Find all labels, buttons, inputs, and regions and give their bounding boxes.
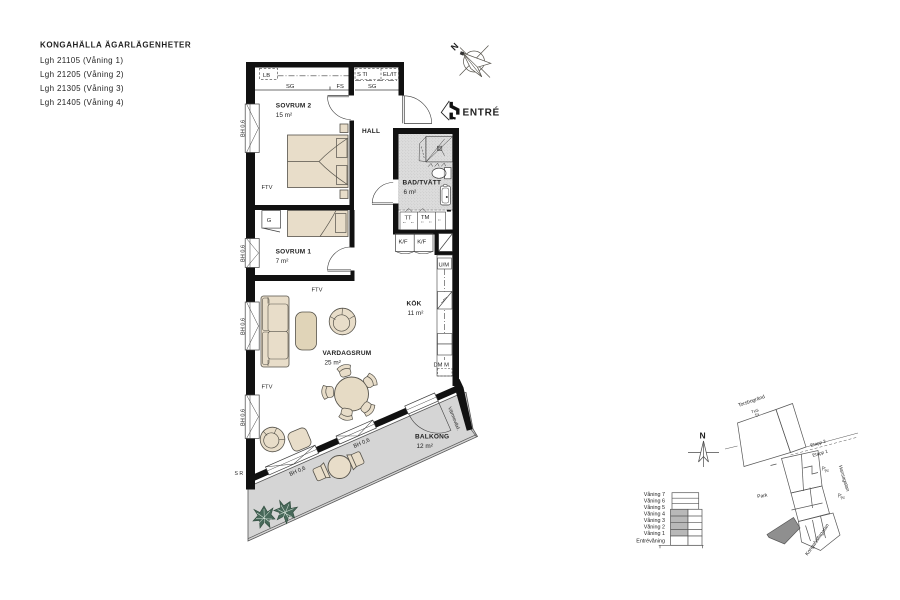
svg-text:Våning 6: Våning 6: [644, 498, 665, 505]
svg-text:BH 0,6: BH 0,6: [241, 318, 247, 335]
svg-text:VARDAGSRUM: VARDAGSRUM: [323, 350, 372, 357]
svg-text:TxG: TxG: [750, 407, 759, 414]
svg-text:DM M: DM M: [434, 363, 450, 369]
svg-text:Kongahällagatan: Kongahällagatan: [804, 523, 831, 557]
svg-text:SOVRUM 2: SOVRUM 2: [276, 103, 312, 110]
svg-text:BH 0,6: BH 0,6: [241, 245, 247, 262]
svg-text:15 m²: 15 m²: [276, 112, 292, 119]
svg-text:BH 0,6: BH 0,6: [241, 409, 247, 426]
svg-text:Lgh 21405 (Våning 4): Lgh 21405 (Våning 4): [40, 98, 124, 107]
svg-text:G: G: [267, 218, 272, 224]
svg-text:Park: Park: [757, 492, 769, 500]
svg-text:FS: FS: [337, 84, 345, 90]
svg-text:EL/IT: EL/IT: [383, 72, 397, 78]
svg-text:N: N: [700, 431, 706, 441]
svg-text:BH 0,6: BH 0,6: [241, 120, 247, 137]
svg-text:SG: SG: [286, 84, 295, 90]
svg-text:6 m²: 6 m²: [404, 189, 417, 196]
svg-text:Lgh 21205 (Våning 2): Lgh 21205 (Våning 2): [40, 70, 124, 79]
svg-text:11 m²: 11 m²: [408, 310, 424, 317]
svg-text:ENTRÉ: ENTRÉ: [463, 106, 500, 119]
svg-text:N: N: [449, 41, 461, 53]
svg-text:Etapp 1: Etapp 1: [812, 449, 829, 458]
svg-text:Våning 3: Våning 3: [644, 517, 665, 524]
svg-text:Våning 5: Våning 5: [644, 504, 665, 511]
svg-text:Hansagatan: Hansagatan: [837, 465, 851, 493]
svg-text:FTV: FTV: [312, 288, 323, 294]
svg-text:7tr: 7tr: [824, 467, 831, 473]
svg-text:KONGAHÄLLA ÄGARLÄGENHETER: KONGAHÄLLA ÄGARLÄGENHETER: [40, 41, 191, 50]
svg-text:Entrévåning: Entrévåning: [636, 538, 665, 545]
svg-text:25 m²: 25 m²: [325, 360, 341, 367]
svg-text:FTV: FTV: [262, 385, 273, 391]
svg-text:S R: S R: [235, 471, 244, 477]
svg-text:12 m²: 12 m²: [417, 443, 433, 450]
svg-text:SOVRUM 1: SOVRUM 1: [276, 249, 312, 256]
svg-text:Torsbogränd: Torsbogränd: [738, 394, 766, 409]
svg-text:KÖK: KÖK: [407, 299, 422, 308]
svg-text:Våning 4: Våning 4: [644, 511, 665, 518]
svg-text:BALKONG: BALKONG: [415, 434, 449, 441]
svg-text:BAD/TVÄTT: BAD/TVÄTT: [403, 179, 442, 187]
svg-text:7tr: 7tr: [840, 494, 847, 500]
svg-text:K/F: K/F: [417, 240, 426, 246]
svg-text:FTV: FTV: [262, 185, 273, 191]
svg-text:Lgh 21305 (Våning 3): Lgh 21305 (Våning 3): [40, 84, 124, 93]
svg-text:K/F: K/F: [399, 240, 408, 246]
svg-text:S TI: S TI: [357, 72, 368, 78]
svg-text:HALL: HALL: [362, 128, 380, 135]
svg-text:LB: LB: [263, 73, 270, 79]
svg-text:Våning 7: Våning 7: [644, 491, 665, 498]
svg-text:Lgh 21105 (Våning 1): Lgh 21105 (Våning 1): [40, 56, 123, 65]
svg-text:D: D: [438, 146, 441, 151]
svg-text:Våning 2: Våning 2: [644, 524, 665, 531]
svg-text:Etapp 2: Etapp 2: [810, 439, 827, 448]
svg-text:TM: TM: [421, 215, 430, 221]
svg-text:U/M: U/M: [439, 263, 450, 269]
svg-text:Våning 1: Våning 1: [644, 530, 665, 537]
svg-text:7 m²: 7 m²: [276, 258, 289, 265]
svg-text:SG: SG: [368, 84, 377, 90]
svg-text:TT: TT: [405, 216, 413, 222]
